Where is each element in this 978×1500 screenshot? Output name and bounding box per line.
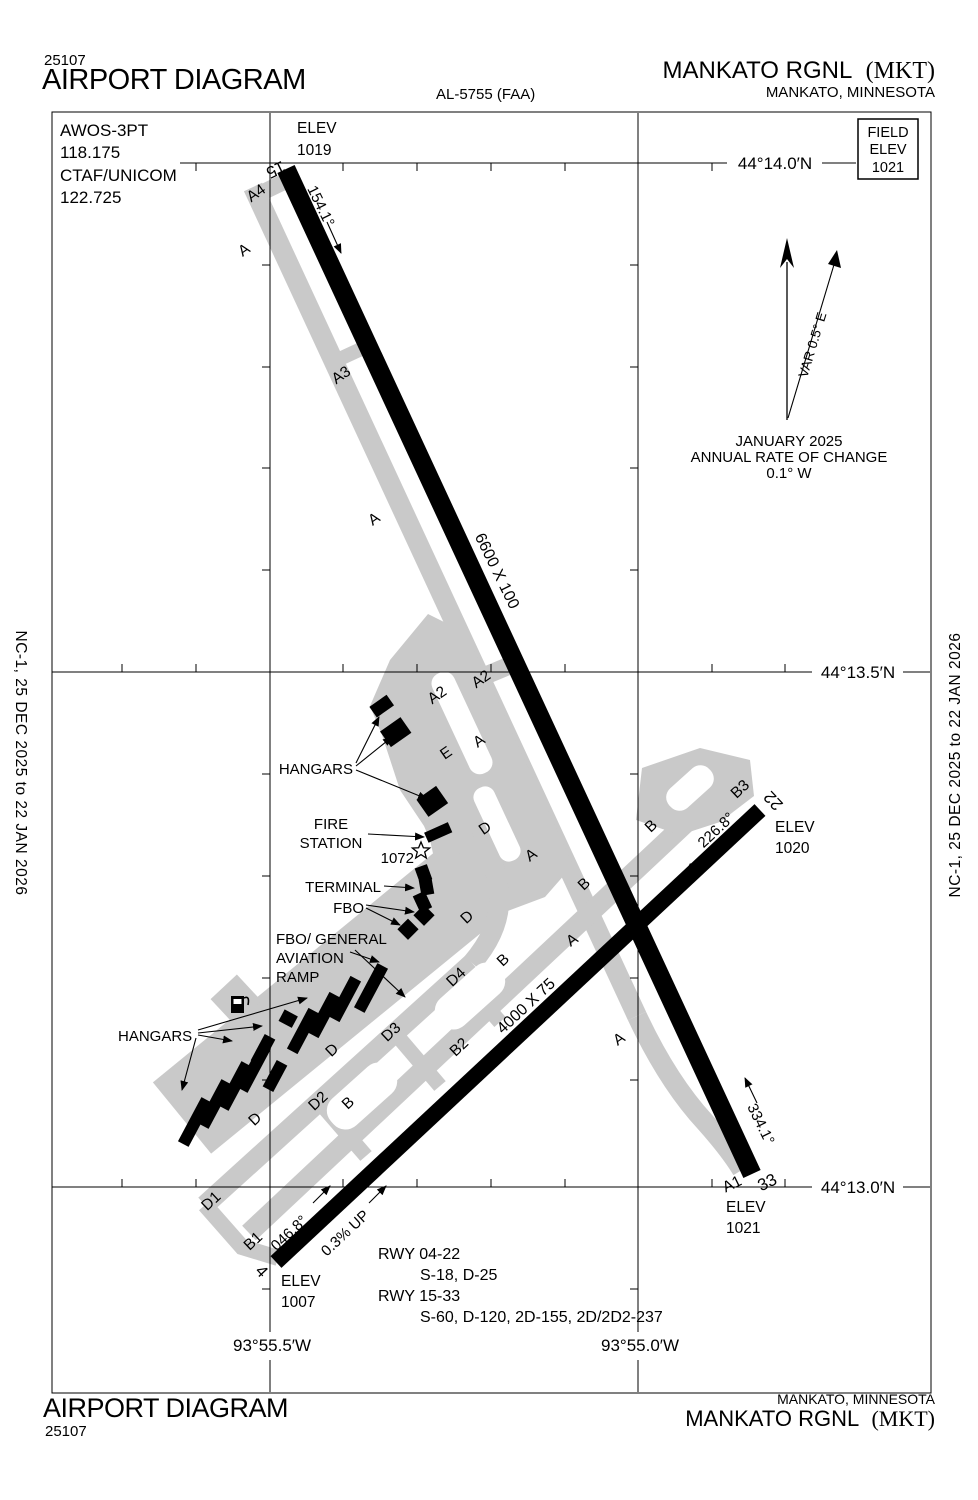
- compass-rose: VAR 0.5° E JANUARY 2025 ANNUAL RATE OF C…: [691, 238, 888, 482]
- compass-rate-value: 0.1° W: [766, 465, 812, 482]
- fire-station-label: STATION: [300, 835, 363, 852]
- edition-left: NC-1, 25 DEC 2025 to 22 JAN 2026: [11, 631, 29, 896]
- field-elev-value: 1021: [872, 160, 904, 176]
- elev-value-15: 1019: [297, 142, 331, 159]
- airport-city-top: MANKATO, MINNESOTA: [766, 84, 935, 101]
- hangars-label: HANGARS: [279, 761, 353, 778]
- runway-data-rwy1: RWY 04-22: [378, 1246, 460, 1263]
- latitude-label: 44°13.5′N: [821, 663, 895, 682]
- airport-diagram-svg: VAR 0.5° E JANUARY 2025 ANNUAL RATE OF C…: [0, 0, 978, 1500]
- airport-name: MANKATO RGNL: [663, 57, 853, 84]
- gradient-arrow: [369, 1186, 386, 1203]
- beacon-elevation-label: 1072: [381, 850, 414, 867]
- elev-value-22: 1020: [775, 840, 810, 857]
- taxiway-label-a1: A1: [720, 1173, 745, 1197]
- taxiway-label-a: A: [610, 1029, 629, 1049]
- compass-date: JANUARY 2025: [735, 433, 842, 450]
- beacon-star-icon: [412, 842, 429, 858]
- comms-block: AWOS-3PT 118.175 CTAF/UNICOM 122.725: [60, 121, 177, 207]
- airport-name-top: MANKATO RGNL (MKT): [663, 57, 935, 85]
- variation-label: VAR 0.5° E: [795, 310, 829, 379]
- variation-arrowhead-icon: [828, 250, 841, 268]
- airport-id: (MKT): [866, 58, 935, 84]
- page-title: AIRPORT DIAGRAM: [42, 64, 306, 97]
- runway-heading-33: 334.1°: [743, 1101, 777, 1148]
- ctaf-label: CTAF/UNICOM: [60, 166, 177, 185]
- runway-end-33: 33: [755, 1170, 780, 1195]
- elev-label-22: ELEV: [775, 819, 815, 836]
- taxiway-label-a: A: [235, 240, 254, 260]
- field-elev-line1: FIELD: [867, 125, 908, 141]
- terminal-label: TERMINAL: [305, 879, 381, 896]
- runway-data-rwy1-codes: S-18, D-25: [420, 1267, 497, 1284]
- hangars-label: HANGARS: [118, 1028, 192, 1045]
- airport-id: (MKT): [871, 1406, 935, 1431]
- airport-name-bottom: MANKATO RGNL (MKT): [685, 1406, 935, 1432]
- elev-label-15: ELEV: [297, 120, 337, 137]
- procedure-id: AL-5755 (FAA): [436, 86, 535, 103]
- ctaf-frequency: 122.725: [60, 188, 121, 207]
- awos-label: AWOS-3PT: [60, 121, 148, 140]
- ga-ramp-label: AVIATION: [276, 950, 344, 967]
- airport-diagram-page: VAR 0.5° E JANUARY 2025 ANNUAL RATE OF C…: [0, 0, 978, 1500]
- airport-name: MANKATO RGNL: [685, 1406, 859, 1431]
- fbo-label: FBO: [333, 900, 364, 917]
- runway-data-block: RWY 04-22 S-18, D-25 RWY 15-33 S-60, D-1…: [378, 1246, 663, 1326]
- runway-data-rwy2: RWY 15-33: [378, 1288, 460, 1305]
- latitude-label: 44°13.0′N: [821, 1178, 895, 1197]
- runway-end-22: 22: [760, 787, 787, 814]
- heading-arrow-04: [313, 1186, 330, 1203]
- elev-label-33: ELEV: [726, 1199, 766, 1216]
- taxiway-label-a: A: [365, 509, 384, 529]
- heading-arrow-33: [745, 1078, 757, 1103]
- longitude-label: 93°55.5′W: [233, 1336, 311, 1355]
- edition-right: NC-1, 25 DEC 2025 to 22 JAN 2026: [947, 633, 965, 898]
- ga-ramp-label: RAMP: [276, 969, 319, 986]
- compass-rate-label: ANNUAL RATE OF CHANGE: [691, 449, 888, 466]
- runway-data-rwy2-codes: S-60, D-120, 2D-155, 2D/2D2-237: [420, 1309, 663, 1326]
- field-elevation-box: FIELD ELEV 1021: [858, 119, 918, 179]
- page-title-bottom: AIRPORT DIAGRAM: [43, 1393, 288, 1424]
- latitude-label: 44°14.0′N: [738, 154, 812, 173]
- longitude-label: 93°55.0′W: [601, 1336, 679, 1355]
- elev-value-04: 1007: [281, 1294, 315, 1311]
- chart-number-bottom: 25107: [45, 1423, 87, 1440]
- airport-city-bottom: MANKATO, MINNESOTA: [777, 1391, 935, 1407]
- field-elev-line2: ELEV: [869, 142, 906, 158]
- awos-frequency: 118.175: [60, 143, 120, 162]
- runway-end-04: 4: [251, 1261, 271, 1281]
- elev-label-04: ELEV: [281, 1273, 321, 1290]
- fire-station-label: FIRE: [314, 816, 348, 833]
- ga-ramp-label: FBO/ GENERAL: [276, 931, 387, 948]
- elev-value-33: 1021: [726, 1220, 760, 1237]
